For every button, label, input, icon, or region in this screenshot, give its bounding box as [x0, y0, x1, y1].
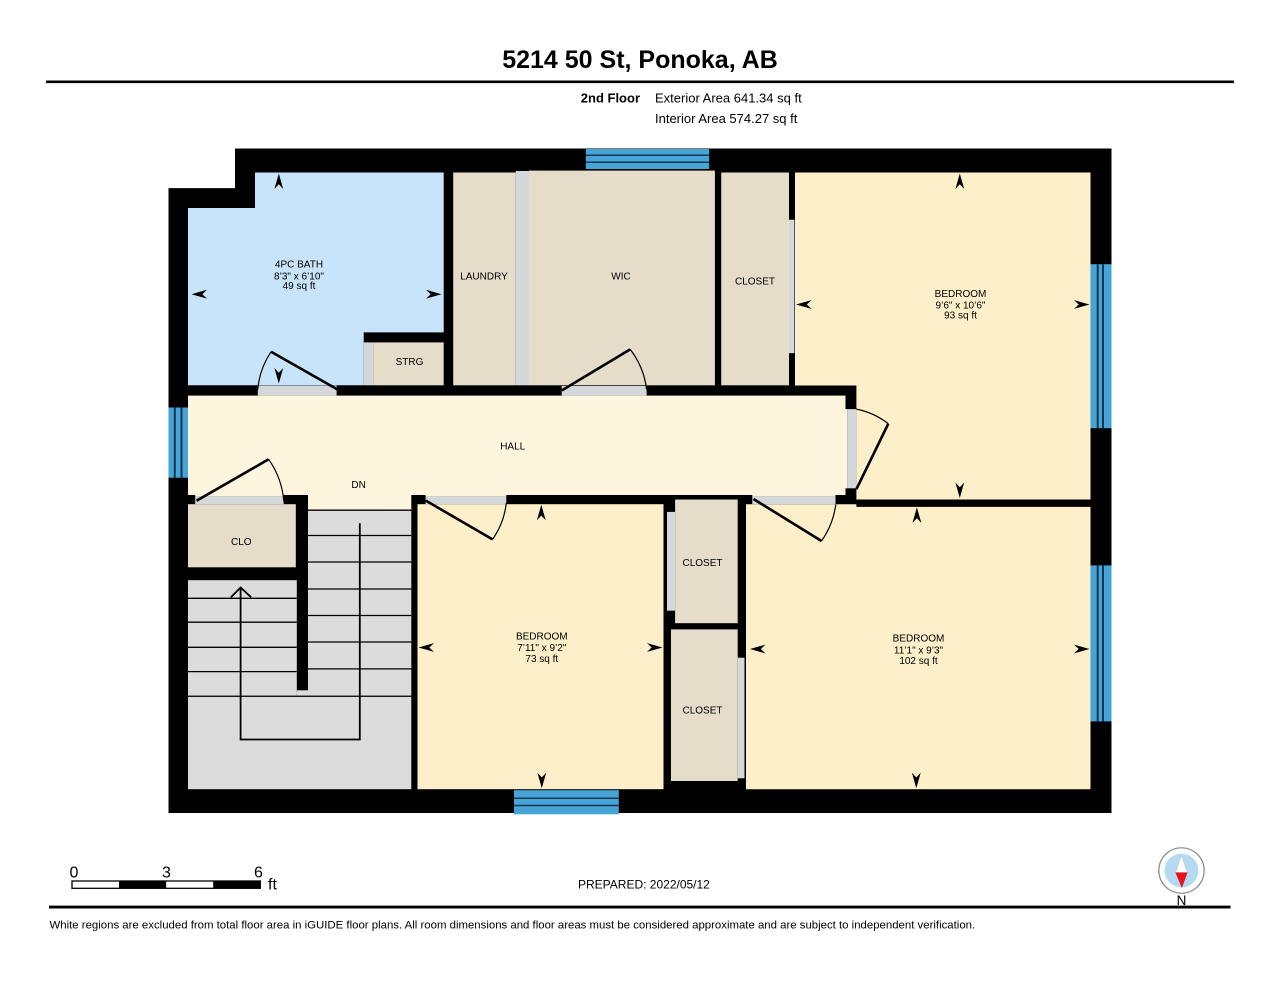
svg-text:2nd Floor: 2nd Floor — [581, 91, 640, 106]
svg-text:5214 50 St, Ponoka, AB: 5214 50 St, Ponoka, AB — [502, 46, 778, 74]
svg-text:BEDROOM: BEDROOM — [935, 289, 987, 300]
svg-text:49 sq ft: 49 sq ft — [283, 281, 316, 292]
svg-text:DN: DN — [351, 480, 365, 491]
svg-text:ft: ft — [268, 877, 277, 894]
svg-text:7’11" x 9’2": 7’11" x 9’2" — [517, 643, 567, 654]
svg-text:White regions are excluded fro: White regions are excluded from total fl… — [50, 920, 976, 932]
svg-text:CLOSET: CLOSET — [682, 558, 722, 569]
svg-text:CLO: CLO — [231, 537, 252, 548]
svg-text:CLOSET: CLOSET — [682, 706, 722, 717]
svg-text:CLOSET: CLOSET — [735, 277, 775, 288]
svg-text:WIC: WIC — [611, 272, 630, 283]
svg-text:0: 0 — [70, 865, 79, 882]
svg-text:93 sq ft: 93 sq ft — [944, 310, 977, 321]
svg-text:3: 3 — [162, 865, 171, 882]
svg-text:6: 6 — [254, 865, 263, 882]
svg-text:4PC BATH: 4PC BATH — [275, 260, 323, 271]
svg-text:BEDROOM: BEDROOM — [516, 632, 568, 643]
svg-text:PREPARED: 2022/05/12: PREPARED: 2022/05/12 — [578, 878, 710, 892]
svg-text:STRG: STRG — [396, 357, 424, 368]
svg-text:Interior Area 574.27 sq ft: Interior Area 574.27 sq ft — [655, 111, 798, 126]
svg-text:HALL: HALL — [500, 442, 525, 453]
svg-text:102 sq ft: 102 sq ft — [899, 656, 938, 667]
svg-text:Exterior Area 641.34 sq ft: Exterior Area 641.34 sq ft — [655, 91, 802, 106]
svg-text:73 sq ft: 73 sq ft — [525, 654, 558, 665]
svg-text:LAUNDRY: LAUNDRY — [460, 272, 508, 283]
svg-text:BEDROOM: BEDROOM — [893, 634, 945, 645]
svg-text:11’1" x 9’3": 11’1" x 9’3" — [894, 645, 944, 656]
